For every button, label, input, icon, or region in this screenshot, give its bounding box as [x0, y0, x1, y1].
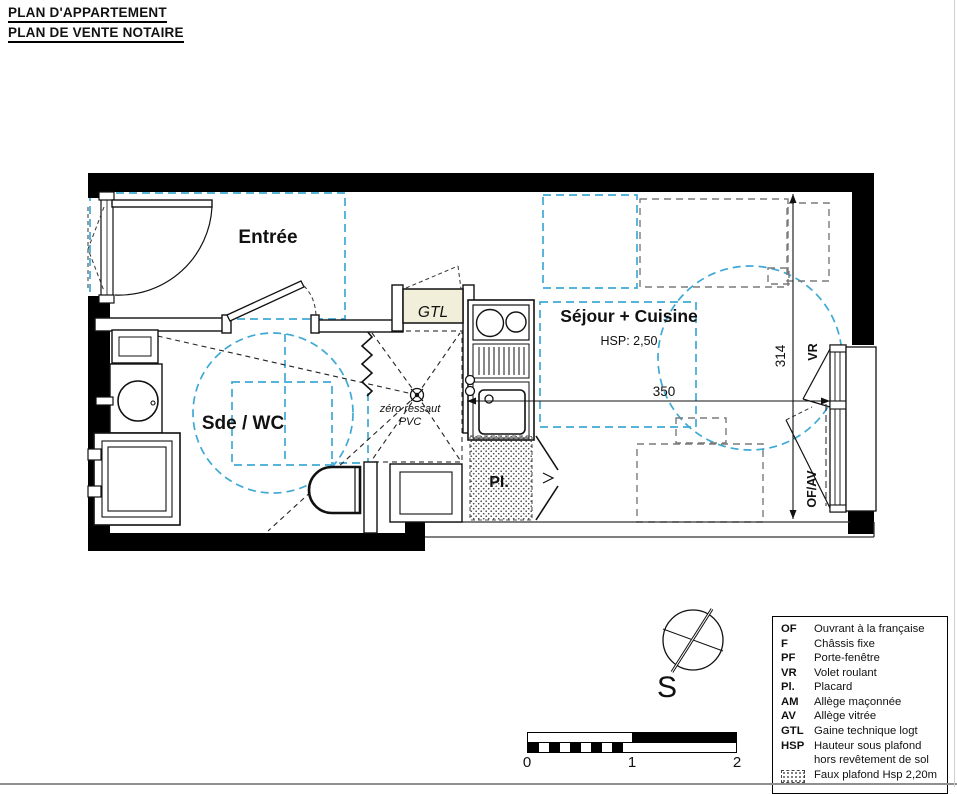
dimension-vertical: 314 [773, 194, 797, 519]
shower-note-line1: zéro ressaut [379, 403, 441, 415]
dim-314: 314 [773, 344, 788, 367]
window-label-of-av: OF/AV [805, 470, 819, 508]
kitchen-unit [466, 300, 535, 440]
room-label-sejour-hsp: HSP: 2,50 [601, 334, 658, 348]
entrance-door [88, 192, 212, 303]
faux-plafond-hatch-icon [781, 770, 805, 783]
legend-row-pf: PF Porte-fenêtre [781, 651, 942, 666]
compass-icon: S [657, 609, 723, 704]
page-border-right [954, 0, 955, 787]
washbasin-tap [96, 397, 113, 405]
shower-screen-zigzag [362, 331, 372, 396]
scale-tick-2: 2 [733, 754, 741, 771]
legend-box: OF Ouvrant à la française F Châssis fixe… [772, 616, 948, 794]
shower-note-line2: PVC [399, 416, 422, 428]
scale-bar-top-row [528, 733, 736, 743]
bathroom-door [227, 281, 316, 321]
legend-row-pl: Pl. Placard [781, 680, 942, 695]
legend-row-gtl: GTL Gaine technique logt [781, 724, 942, 739]
room-label-sejour: Séjour + Cuisine [560, 306, 698, 326]
entrance-door-swing-arc [115, 207, 212, 295]
dim-350: 350 [653, 384, 676, 399]
legend-row-hsp: HSP Hauteur sous plafond hors revêtement… [781, 739, 942, 768]
scale-bar: 0 1 2 [527, 732, 737, 771]
toilet [309, 467, 360, 513]
compass-south-label: S [657, 671, 677, 704]
window-assembly [786, 345, 876, 512]
legend-row-vr: VR Volet roulant [781, 666, 942, 681]
scale-bar-bottom-row [528, 743, 736, 752]
entrance-door-leaf [112, 200, 212, 207]
scale-tick-1: 1 [628, 754, 636, 771]
sink-tap [466, 376, 475, 385]
balcony-edge-lines [425, 522, 874, 537]
room-label-gtl: GTL [418, 304, 448, 321]
legend-row-f: F Châssis fixe [781, 637, 942, 652]
floor-drain-icon [411, 389, 424, 402]
scale-tick-0: 0 [523, 754, 531, 771]
page-border-bottom [0, 783, 957, 785]
cabinet [390, 464, 462, 522]
room-label-entree: Entrée [238, 227, 297, 248]
scale-bar-labels: 0 1 2 [527, 753, 737, 771]
room-label-sde-wc: Sde / WC [202, 413, 285, 434]
legend-row-of: OF Ouvrant à la française [781, 622, 942, 637]
window-label-vr: VR [806, 343, 820, 360]
furniture-outlines [637, 199, 829, 522]
legend-row-av: AV Allège vitrée [781, 709, 942, 724]
floor-plan-page: { "title": { "line1": "PLAN D'APPARTEMEN… [0, 0, 957, 787]
room-label-placard: Pl. [489, 474, 509, 491]
closet [470, 436, 558, 520]
roller-shutter-box [846, 347, 876, 511]
legend-row-am: AM Allège maçonnée [781, 695, 942, 710]
